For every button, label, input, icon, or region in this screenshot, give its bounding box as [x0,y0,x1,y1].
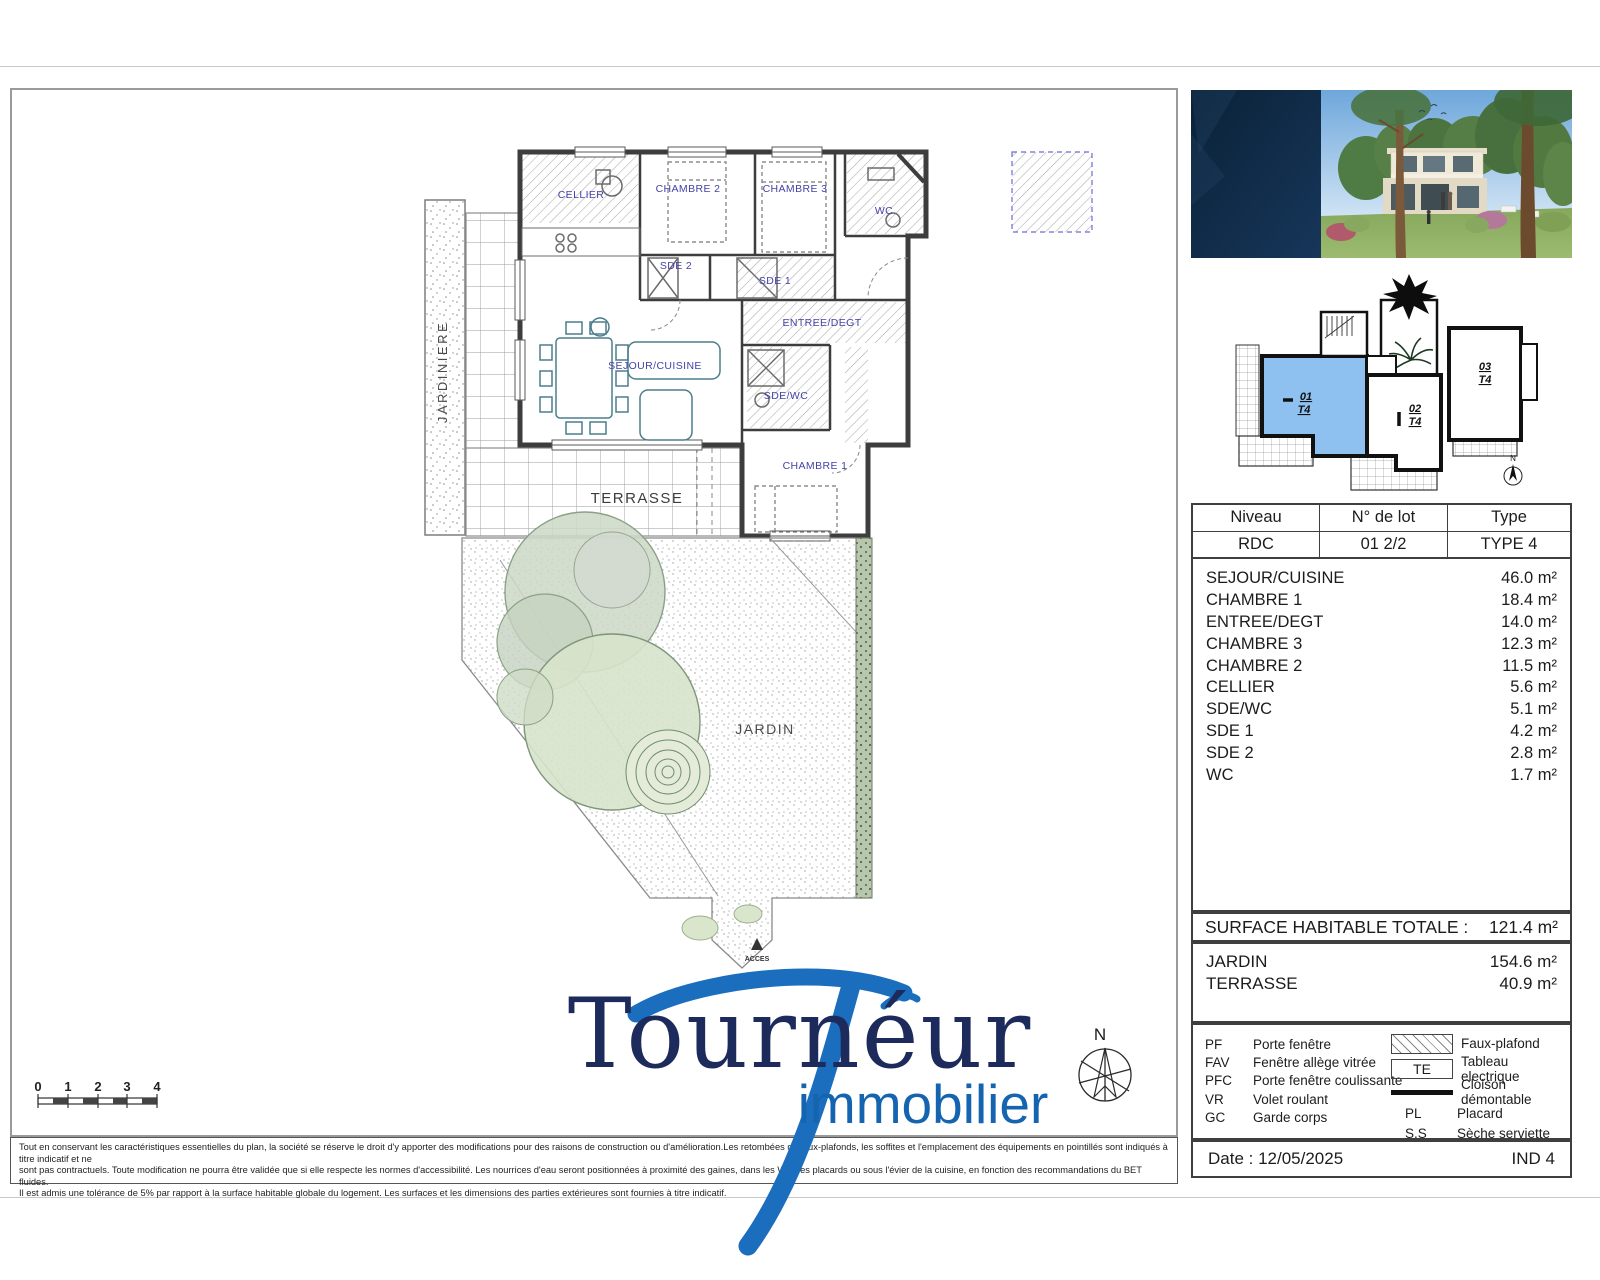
label-entree: ENTREE/DEGT [782,317,861,329]
label-chambre3: CHAMBRE 3 [763,183,828,195]
svg-text:3: 3 [123,1079,130,1094]
label-sde2: SDE 2 [660,260,692,272]
label-chambre2: CHAMBRE 2 [656,183,721,195]
plan-sheet: JARDINIERE TERRASSE [0,0,1600,1280]
label-wc: WC [875,205,893,217]
north-label: N [1094,1025,1106,1044]
label-chambre1: CHAMBRE 1 [783,460,848,472]
jardiniere-label: JARDINIERE [435,321,450,423]
scale-bar: 0 1 2 3 4 [34,1079,161,1108]
spiral-tree [626,730,710,814]
svg-text:0: 0 [34,1079,41,1094]
terrasse-label: TERRASSE [591,490,684,507]
garden: JARDIN ACCES [462,512,872,968]
north-compass: N [1079,1025,1131,1101]
label-sdewc: SDE/WC [764,390,808,402]
label-sejour: SEJOUR/CUISINE [608,360,702,372]
svg-text:1: 1 [64,1079,71,1094]
acces-label: ACCES [745,956,770,963]
svg-text:4: 4 [153,1079,161,1094]
floor-plan-drawing: JARDINIERE TERRASSE [0,0,1600,1280]
label-sde1: SDE 1 [759,275,791,287]
jardin-label: JARDIN [735,721,795,737]
terrace: TERRASSE [466,213,742,536]
jardiniere-strip: JARDINIERE [425,200,465,535]
svg-text:2: 2 [94,1079,101,1094]
label-cellier: CELLIER [558,189,605,201]
